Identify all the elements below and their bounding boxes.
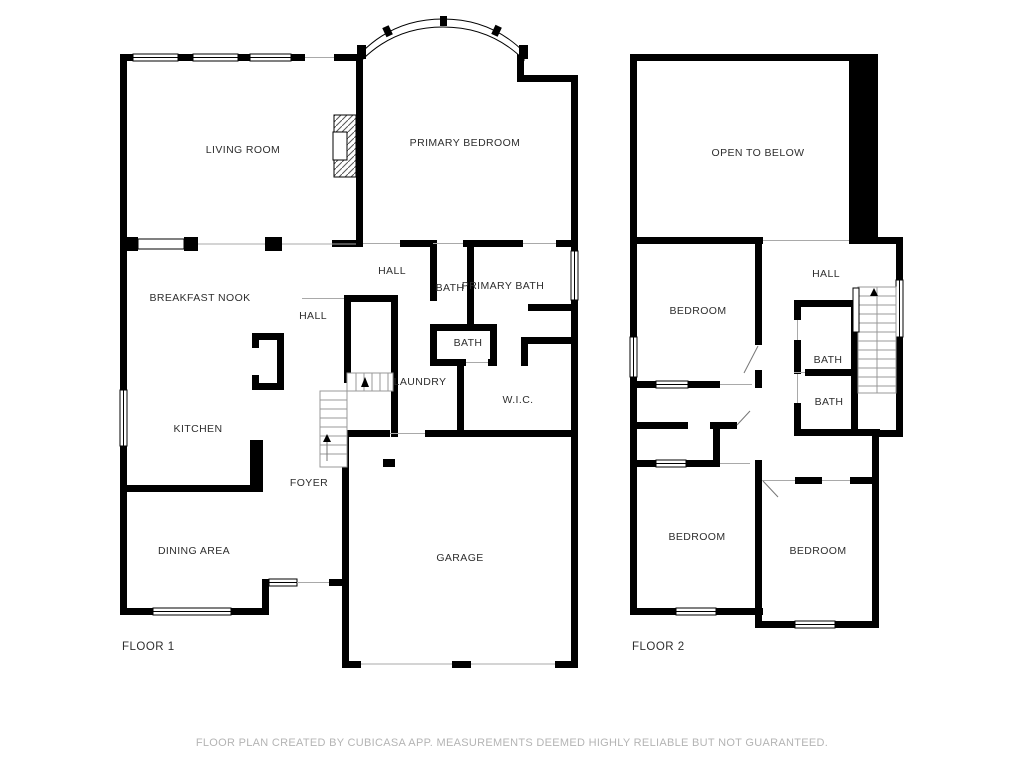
room-label-wic: W.I.C. — [503, 394, 534, 406]
room-label-foyer: FOYER — [290, 477, 328, 489]
bay-window — [357, 16, 528, 60]
room-label-laundry: LAUNDRY — [394, 376, 447, 388]
room-label-bedroom-right: BEDROOM — [789, 545, 846, 557]
room-label-bedroom-left: BEDROOM — [668, 531, 725, 543]
floor1-title: FLOOR 1 — [122, 641, 175, 653]
room-label-hall-floor2: HALL — [812, 268, 840, 280]
room-label-living-room: LIVING ROOM — [206, 144, 280, 156]
room-label-breakfast-nook: BREAKFAST NOOK — [149, 292, 250, 304]
floor2-title: FLOOR 2 — [632, 641, 685, 653]
room-label-hall-lower: HALL — [299, 310, 327, 322]
room-label-bath-upper: BATH — [436, 282, 465, 294]
floor-plan-canvas: LIVING ROOM PRIMARY BEDROOM HALL BATH PR… — [0, 0, 1024, 768]
room-label-open-to-below: OPEN TO BELOW — [712, 147, 805, 159]
room-label-kitchen: KITCHEN — [174, 423, 223, 435]
stair-railing — [853, 288, 859, 332]
room-label-dining-area: DINING AREA — [158, 545, 230, 557]
staircase-floor2-icon — [853, 287, 896, 393]
fireplace-icon — [333, 115, 356, 177]
room-label-garage: GARAGE — [436, 552, 483, 564]
room-label-primary-bedroom: PRIMARY BEDROOM — [410, 137, 521, 149]
room-label-bath-center: BATH — [454, 337, 483, 349]
room-label-bedroom-top: BEDROOM — [669, 305, 726, 317]
footer-disclaimer: FLOOR PLAN CREATED BY CUBICASA APP. MEAS… — [0, 737, 1024, 749]
room-label-primary-bath: PRIMARY BATH — [462, 280, 544, 292]
room-label-hall-upper: HALL — [378, 265, 406, 277]
staircase-floor1-icon — [320, 373, 393, 467]
room-label-bath-upper-floor2: BATH — [814, 354, 843, 366]
room-label-bath-lower-floor2: BATH — [815, 396, 844, 408]
